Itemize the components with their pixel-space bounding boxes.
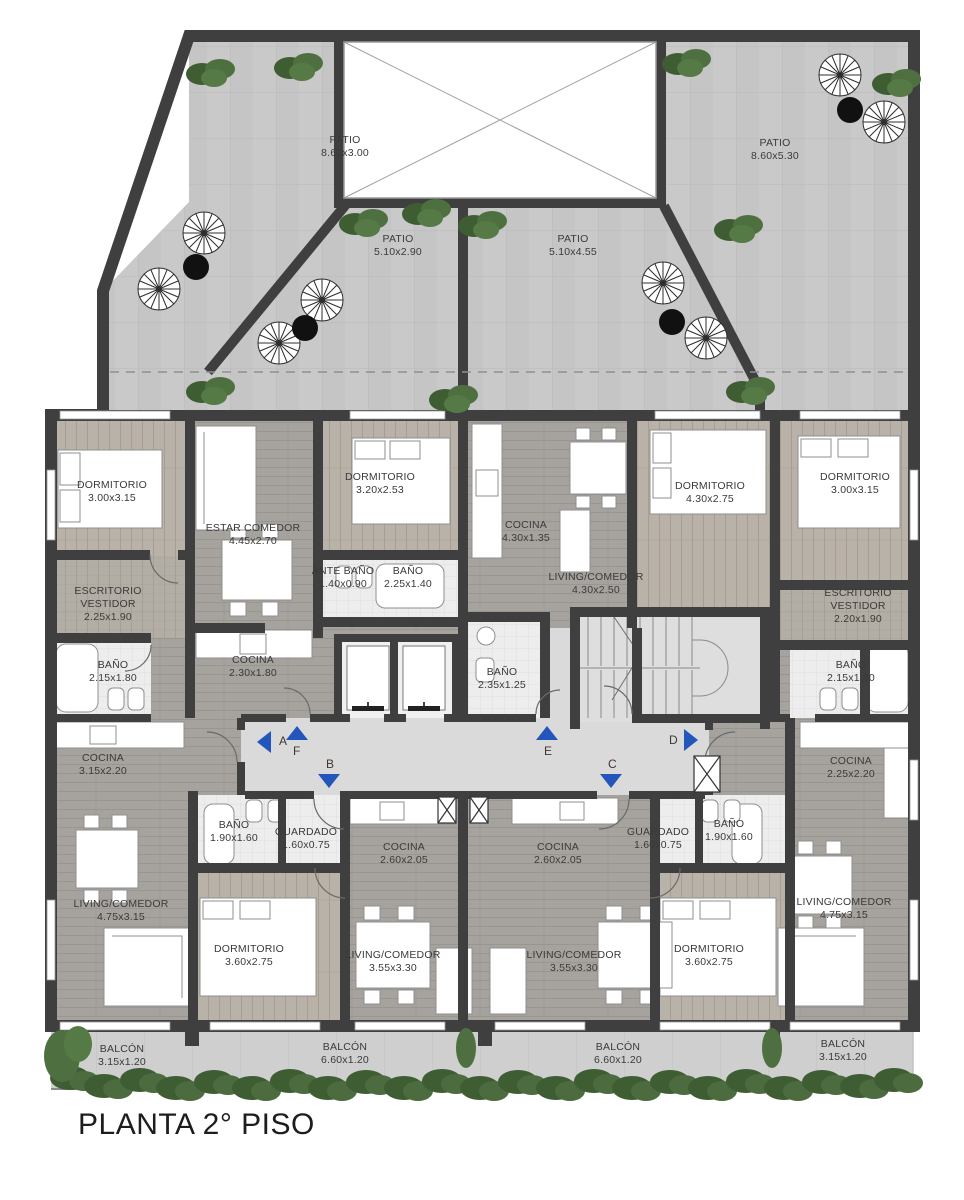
room-label-bano-c: BAÑO2.25x1.40 — [384, 565, 432, 591]
room-label-balcon-3: BALCÓN6.60x1.20 — [594, 1041, 642, 1067]
unit-e-letter: E — [544, 744, 552, 758]
room-label-balcon-1: BALCÓN3.15x1.20 — [98, 1043, 146, 1069]
room-label-escritorio-w: ESCRITORIOVESTIDOR2.25x1.90 — [74, 585, 141, 623]
palm-plant-icon — [819, 54, 861, 96]
sofa — [104, 928, 190, 1006]
sofa — [196, 426, 256, 530]
palm-plant-icon — [863, 101, 905, 143]
unit-b-arrow-icon — [318, 774, 340, 788]
room-label-balcon-4: BALCÓN3.15x1.20 — [819, 1038, 867, 1064]
page-title: PLANTA 2° PISO — [78, 1108, 315, 1142]
room-label-living-a: LIVING/COMEDOR4.75x3.15 — [74, 898, 169, 924]
palm-plant-icon — [642, 262, 684, 304]
patio-table-icon — [659, 309, 685, 335]
floor-plan-drawing — [0, 0, 964, 1200]
floor-plan: PATIO8.60x3.00 PATIO8.60x5.30 PATIO5.10x… — [0, 0, 964, 1200]
kitchen-counter — [472, 424, 502, 558]
room-label-cocina-f: COCINA2.30x1.80 — [229, 654, 277, 680]
palm-plant-icon — [138, 268, 180, 310]
room-label-dormitorio-ne: DORMITORIO3.00x3.15 — [820, 471, 890, 497]
room-label-dormitorio-c: DORMITORIO3.20x2.53 — [345, 471, 415, 497]
room-label-cocina-e: COCINA4.30x1.35 — [502, 519, 550, 545]
room-label-cocina-c: COCINA2.60x2.05 — [534, 841, 582, 867]
sofa — [560, 510, 590, 572]
palm-plant-icon — [685, 317, 727, 359]
palm-plant-icon — [183, 212, 225, 254]
room-label-patio-ne: PATIO8.60x5.30 — [751, 137, 799, 163]
room-label-bano-e: BAÑO2.35x1.25 — [478, 666, 526, 692]
room-label-guardado-d: GUARDADO1.60x0.75 — [627, 826, 689, 852]
patio-table-icon — [292, 315, 318, 341]
palm-plant-icon — [301, 279, 343, 321]
unit-f-letter: F — [293, 744, 300, 758]
room-label-guardado-a: GUARDADO1.60x0.75 — [275, 826, 337, 852]
room-label-living-b: LIVING/COMEDOR3.55x3.30 — [346, 949, 441, 975]
room-label-patio-ce: PATIO5.10x4.55 — [549, 233, 597, 259]
patio-table-icon — [837, 97, 863, 123]
room-label-dormitorio-a: DORMITORIO3.60x2.75 — [214, 943, 284, 969]
room-label-bano-w: BAÑO2.15x1.80 — [89, 659, 137, 685]
room-label-bano-d: BAÑO1.90x1.60 — [705, 818, 753, 844]
room-label-living-e: LIVING/COMEDOR4.30x2.50 — [549, 571, 644, 597]
room-label-living-c: LIVING/COMEDOR3.55x3.30 — [527, 949, 622, 975]
room-label-living-d: LIVING/COMEDOR4.75x3.15 — [797, 896, 892, 922]
unit-d-arrow-icon — [684, 729, 698, 751]
room-label-dormitorio-d: DORMITORIO3.60x2.75 — [674, 943, 744, 969]
room-label-escritorio-e: ESCRITORIOVESTIDOR2.20x1.90 — [824, 587, 891, 625]
unit-c-arrow-icon — [600, 774, 622, 788]
room-label-dormitorio-e: DORMITORIO4.30x2.75 — [675, 480, 745, 506]
room-label-patio-cw: PATIO5.10x2.90 — [374, 233, 422, 259]
room-label-cocina-b: COCINA2.60x2.05 — [380, 841, 428, 867]
room-label-cocina-d2: COCINA2.25x2.20 — [827, 755, 875, 781]
unit-d-letter: D — [669, 733, 678, 747]
kitchen-counter — [56, 722, 184, 748]
room-label-dormitorio-nw: DORMITORIO3.00x3.15 — [77, 479, 147, 505]
unit-c-letter: C — [608, 757, 617, 771]
room-label-balcon-2: BALCÓN6.60x1.20 — [321, 1041, 369, 1067]
unit-a-arrow-icon — [257, 731, 271, 753]
unit-e-arrow-icon — [536, 726, 558, 740]
unit-b-letter: B — [326, 757, 334, 771]
patio-table-icon — [183, 254, 209, 280]
sofa — [490, 948, 526, 1014]
light-well — [344, 42, 656, 198]
room-label-cocina-a: COCINA3.15x2.20 — [79, 752, 127, 778]
room-label-ante-bano: ANTE BAÑO1.40x0.90 — [312, 565, 374, 591]
unit-f-arrow-icon — [286, 726, 308, 740]
room-label-estar-comedor: ESTAR COMEDOR4.45x2.70 — [206, 522, 301, 548]
room-label-bano-r: BAÑO2.15x1.80 — [827, 659, 875, 685]
kitchen-counter — [512, 798, 618, 824]
room-label-bano-a: BAÑO1.90x1.60 — [210, 819, 258, 845]
room-label-patio-nw: PATIO8.60x3.00 — [321, 134, 369, 160]
